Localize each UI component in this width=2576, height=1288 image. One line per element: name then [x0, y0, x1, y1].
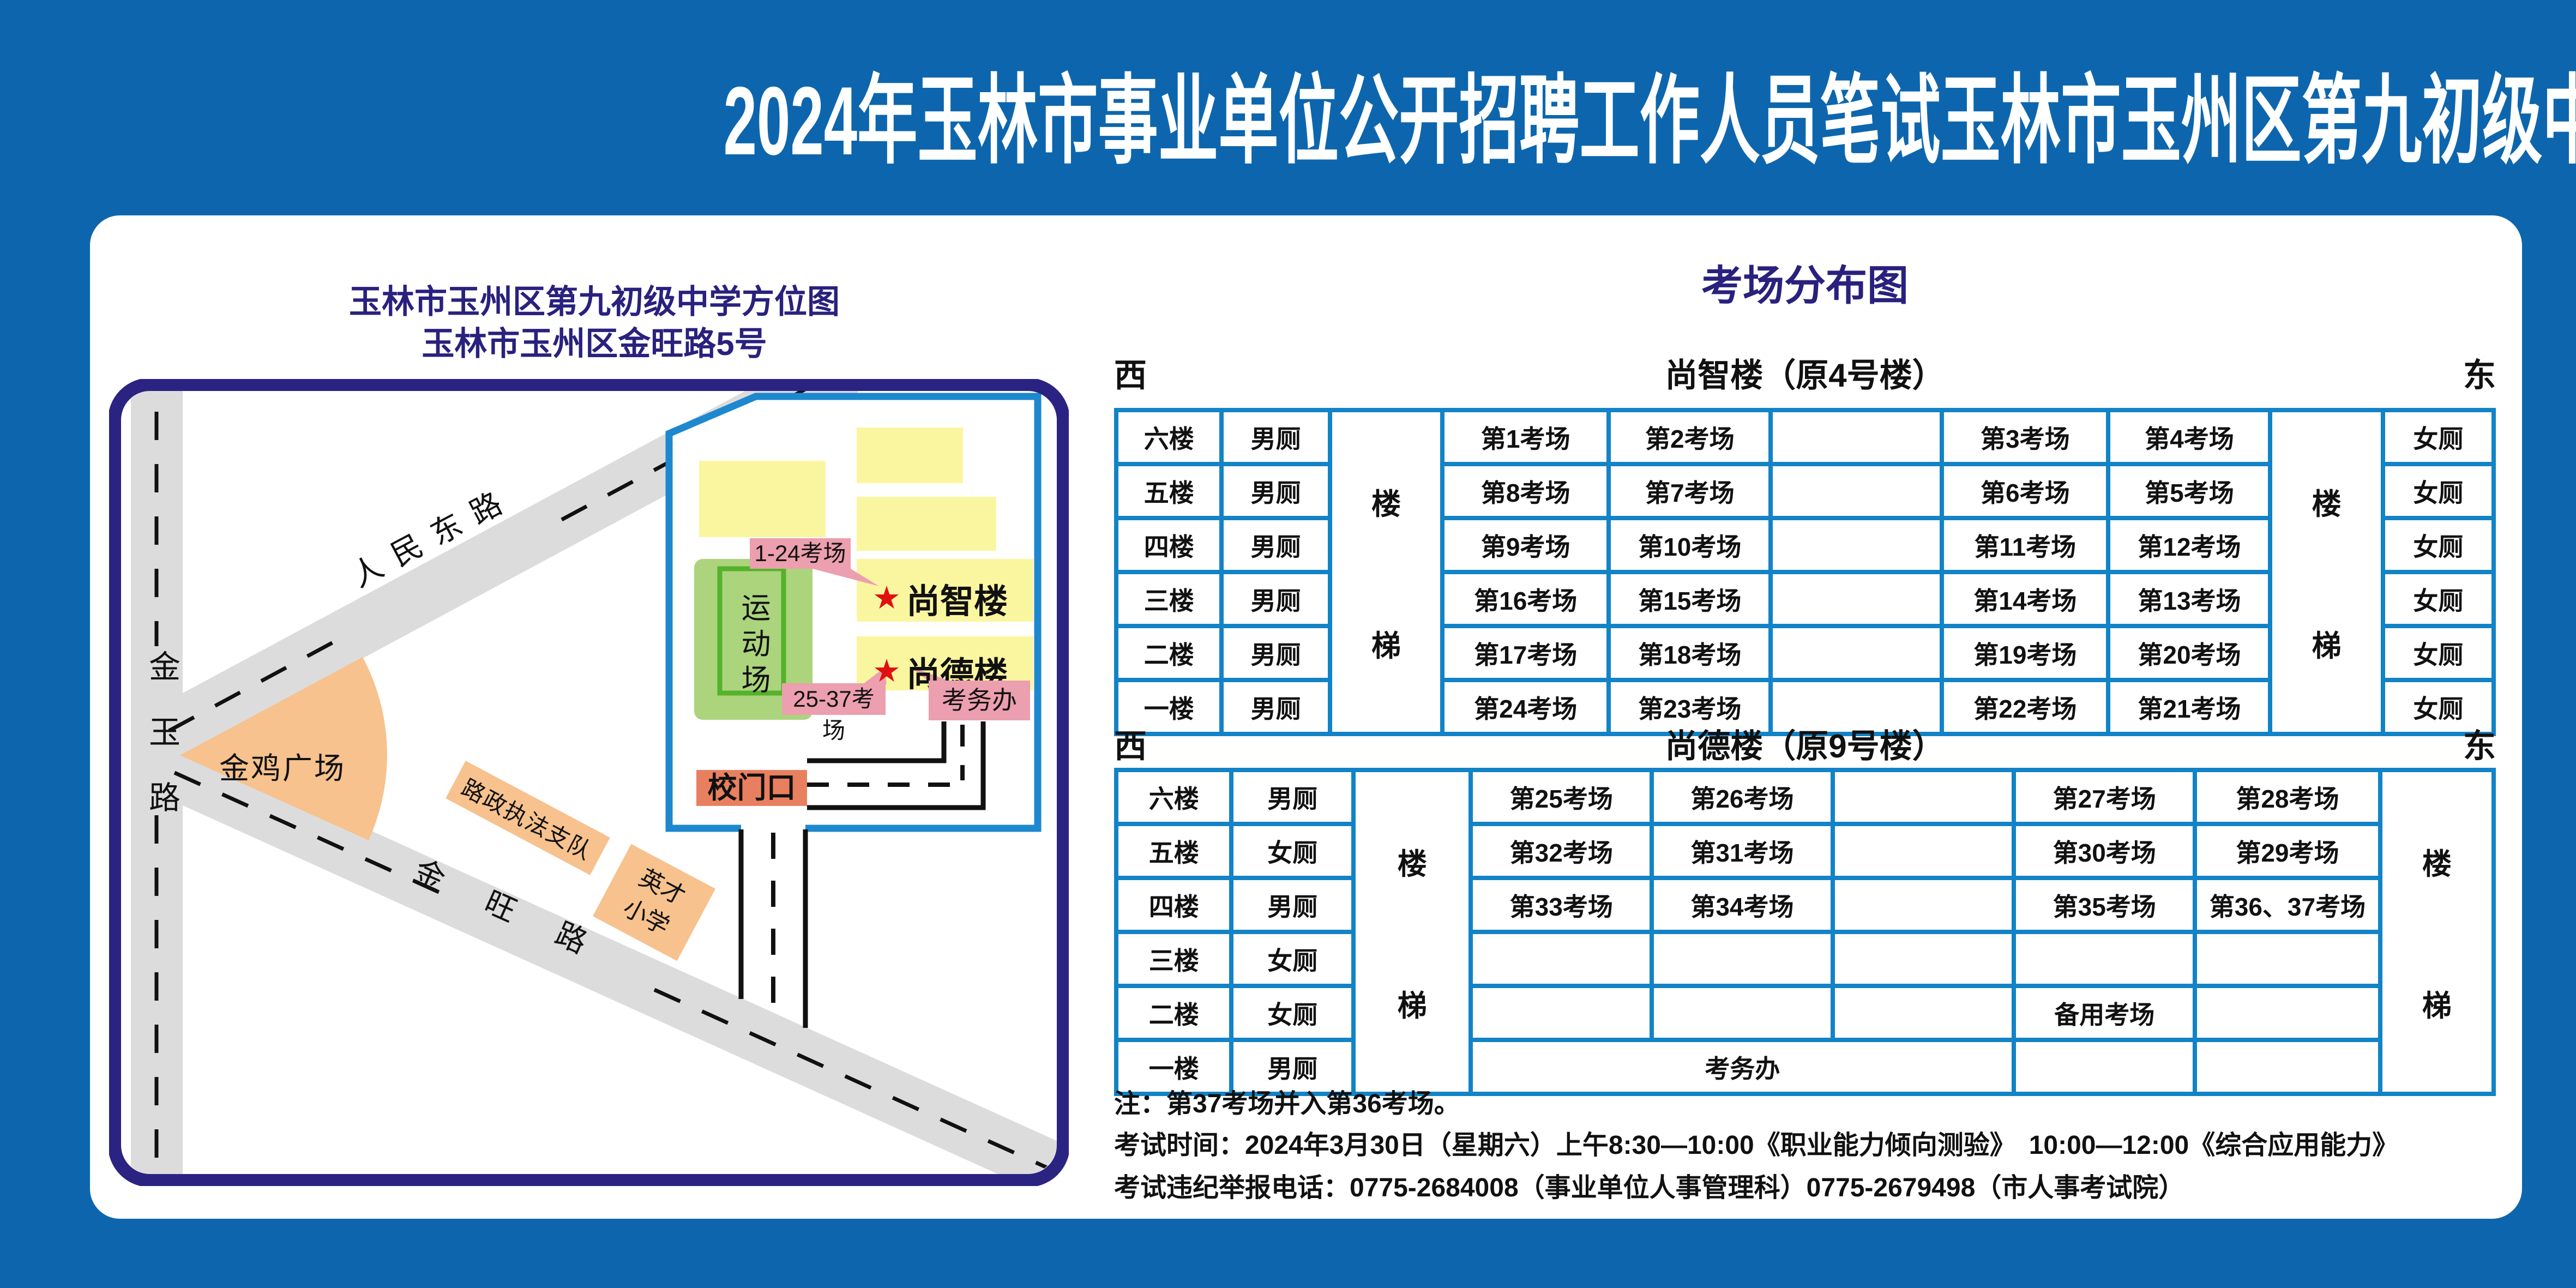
map-title-line2: 玉林市玉州区金旺路5号 — [109, 317, 1080, 365]
toilet-cell: 男厕 — [1221, 572, 1329, 626]
room-cell — [1471, 932, 1652, 986]
room-cell: 第26考场 — [1652, 770, 1833, 824]
room-cell: 第8考场 — [1442, 464, 1609, 518]
table-row: 六楼 男厕 楼 梯 第25考场 第26考场 第27考场 第28考场 楼 梯 — [1116, 770, 2494, 824]
corridor-cell — [1771, 572, 1942, 626]
toilet-cell: 男厕 — [1221, 464, 1329, 518]
room-cell: 第31考场 — [1652, 824, 1833, 878]
room-cell: 第16考场 — [1442, 572, 1609, 626]
room-cell: 第5考场 — [2108, 464, 2270, 518]
room-cell: 第19考场 — [1942, 626, 2108, 680]
room-cell — [2014, 932, 2195, 986]
west-label: 西 — [1114, 349, 1147, 396]
corridor-cell — [1771, 464, 1942, 518]
room-cell: 第4考场 — [2108, 410, 2270, 464]
room-cell: 第29考场 — [2195, 824, 2380, 878]
east-label: 东 — [2463, 720, 2496, 767]
room-cell: 第20考场 — [2108, 626, 2270, 680]
room-cell: 第1考场 — [1442, 410, 1609, 464]
room-cell: 第11考场 — [1942, 518, 2108, 572]
note-merge: 注：第37考场并入第36考场。 — [1114, 1082, 1460, 1120]
label-yingcai-text: 英才小学 — [614, 860, 694, 945]
toilet-cell: 女厕 — [1231, 824, 1353, 878]
toilet-cell: 女厕 — [1231, 986, 1353, 1040]
room-cell: 第33考场 — [1471, 878, 1652, 932]
room-cell: 备用考场 — [2014, 986, 2195, 1040]
label-rooms-25-37: 25-37考场 — [782, 683, 886, 715]
room-cell: 第34考场 — [1652, 878, 1833, 932]
label-rooms-1-24: 1-24考场 — [750, 538, 851, 569]
room-cell: 第17考场 — [1442, 626, 1609, 680]
stairs-lower: 梯 — [2422, 982, 2452, 1025]
room-cell: 第10考场 — [1609, 518, 1771, 572]
floor-cell: 三楼 — [1116, 572, 1221, 626]
table-row: 三楼 女厕 — [1116, 932, 2494, 986]
corridor-cell — [1771, 410, 1942, 464]
label-jinyu-road: 金玉路 — [139, 650, 184, 846]
label-exam-office: 考务办 — [929, 681, 1030, 720]
corridor-cell — [1833, 932, 2014, 986]
exam-office-cell: 考务办 — [1471, 1040, 2014, 1094]
building2-header: 西 尚德楼（原9号楼） 东 — [1114, 724, 2496, 762]
stairs-upper: 楼 — [1398, 840, 1427, 883]
room-cell: 第35考场 — [2014, 878, 2195, 932]
room-cell: 第25考场 — [1471, 770, 1652, 824]
room-cell — [2195, 986, 2380, 1040]
toilet-cell: 女厕 — [2383, 626, 2494, 680]
toilet-cell: 男厕 — [1221, 410, 1329, 464]
stairs-cell-left: 楼 梯 — [1330, 410, 1442, 734]
building2-table: 六楼 男厕 楼 梯 第25考场 第26考场 第27考场 第28考场 楼 梯 — [1114, 768, 2496, 1096]
label-jinji-square: 金鸡广场 — [201, 744, 364, 787]
exam-site-poster: 2024年玉林市事业单位公开招聘工作人员笔试玉林市玉州区第九初级中学考点考场示意… — [0, 0, 2576, 1288]
label-sports-field: 运动场 — [732, 592, 775, 700]
room-cell: 第32考场 — [1471, 824, 1652, 878]
room-cell: 第27考场 — [2014, 770, 2195, 824]
room-cell: 第28考场 — [2195, 770, 2380, 824]
stairs-upper: 楼 — [2422, 840, 2452, 883]
shangzhi-building-label: ★ 尚智楼 — [872, 574, 1008, 623]
stairs-lower: 梯 — [1371, 622, 1401, 665]
corridor-cell — [1771, 518, 1942, 572]
map-title-line1: 玉林市玉州区第九初级中学方位图 — [109, 275, 1080, 323]
stairs-upper: 楼 — [1371, 480, 1401, 523]
corridor-cell — [1833, 770, 2014, 824]
toilet-cell: 男厕 — [1231, 878, 1353, 932]
room-cell — [2014, 1040, 2195, 1094]
toilet-cell: 女厕 — [2383, 518, 2494, 572]
star-icon: ★ — [872, 582, 901, 614]
floor-cell: 五楼 — [1116, 824, 1231, 878]
building2-name: 尚德楼（原9号楼） — [1665, 720, 1945, 767]
west-label: 西 — [1114, 720, 1147, 767]
room-cell: 第36、37考场 — [2195, 878, 2380, 932]
building-3 — [857, 497, 996, 551]
star-icon: ★ — [872, 655, 901, 687]
toilet-cell: 男厕 — [1221, 626, 1329, 680]
table-row: 二楼 女厕 备用考场 — [1116, 986, 2494, 1040]
room-cell — [1471, 986, 1652, 1040]
floor-cell: 五楼 — [1116, 464, 1221, 518]
room-cell: 第13考场 — [2108, 572, 2270, 626]
room-cell — [2195, 932, 2380, 986]
floor-cell: 三楼 — [1116, 932, 1231, 986]
floor-cell: 二楼 — [1116, 986, 1231, 1040]
building-1 — [699, 461, 826, 537]
table-row: 四楼 男厕 第33考场 第34考场 第35考场 第36、37考场 — [1116, 878, 2494, 932]
toilet-cell: 女厕 — [2383, 464, 2494, 518]
building1-header: 西 尚智楼（原4号楼） 东 — [1114, 353, 2496, 392]
room-cell — [2195, 1040, 2380, 1094]
floor-cell: 六楼 — [1116, 410, 1221, 464]
room-cell: 第30考场 — [2014, 824, 2195, 878]
east-label: 东 — [2463, 349, 2496, 396]
note-exam-time: 考试时间：2024年3月30日（星期六）上午8:30—10:00《职业能力倾向测… — [1114, 1123, 2398, 1161]
room-cell: 第18考场 — [1609, 626, 1771, 680]
table-row: 六楼 男厕 楼 梯 第1考场 第2考场 第3考场 第4考场 楼 梯 — [1116, 410, 2494, 464]
room-cell: 第7考场 — [1609, 464, 1771, 518]
room-cell: 第9考场 — [1442, 518, 1609, 572]
room-cell — [1652, 932, 1833, 986]
note-report-phone: 考试违纪举报电话：0775-2684008（事业单位人事管理科）0775-267… — [1114, 1166, 2184, 1204]
floor-cell: 四楼 — [1116, 878, 1231, 932]
shangzhi-name: 尚智楼 — [906, 574, 1008, 623]
corridor-cell — [1833, 986, 2014, 1040]
room-cell: 第15考场 — [1609, 572, 1771, 626]
table-row: 五楼 女厕 第32考场 第31考场 第30考场 第29考场 — [1116, 824, 2494, 878]
toilet-cell: 男厕 — [1231, 770, 1353, 824]
corridor-cell — [1833, 824, 2014, 878]
room-cell: 第14考场 — [1942, 572, 2108, 626]
stairs-cell-right: 楼 梯 — [2270, 410, 2382, 734]
toilet-cell: 女厕 — [1231, 932, 1353, 986]
building1-table: 六楼 男厕 楼 梯 第1考场 第2考场 第3考场 第4考场 楼 梯 — [1114, 408, 2496, 736]
floor-cell: 六楼 — [1116, 770, 1231, 824]
toilet-cell: 女厕 — [2383, 572, 2494, 626]
building1-name: 尚智楼（原4号楼） — [1665, 349, 1945, 396]
stairs-lower: 梯 — [1398, 982, 1427, 1025]
corridor-cell — [1833, 878, 2014, 932]
stairs-lower: 梯 — [2312, 622, 2342, 665]
room-cell: 第12考场 — [2108, 518, 2270, 572]
school-gate-label: 校门口 — [696, 770, 807, 806]
corridor-cell — [1771, 626, 1942, 680]
room-cell — [1652, 986, 1833, 1040]
room-cell: 第6考场 — [1942, 464, 2108, 518]
stairs-cell-left: 楼 梯 — [1353, 770, 1471, 1094]
room-cell: 第2考场 — [1609, 410, 1771, 464]
building-2 — [857, 428, 963, 483]
toilet-cell: 男厕 — [1221, 518, 1329, 572]
stairs-upper: 楼 — [2312, 480, 2342, 523]
distribution-title: 考场分布图 — [1114, 252, 2496, 312]
toilet-cell: 女厕 — [2383, 410, 2494, 464]
stairs-cell-right: 楼 梯 — [2380, 770, 2494, 1094]
room-cell: 第3考场 — [1942, 410, 2108, 464]
floor-cell: 四楼 — [1116, 518, 1221, 572]
floor-cell: 二楼 — [1116, 626, 1221, 680]
